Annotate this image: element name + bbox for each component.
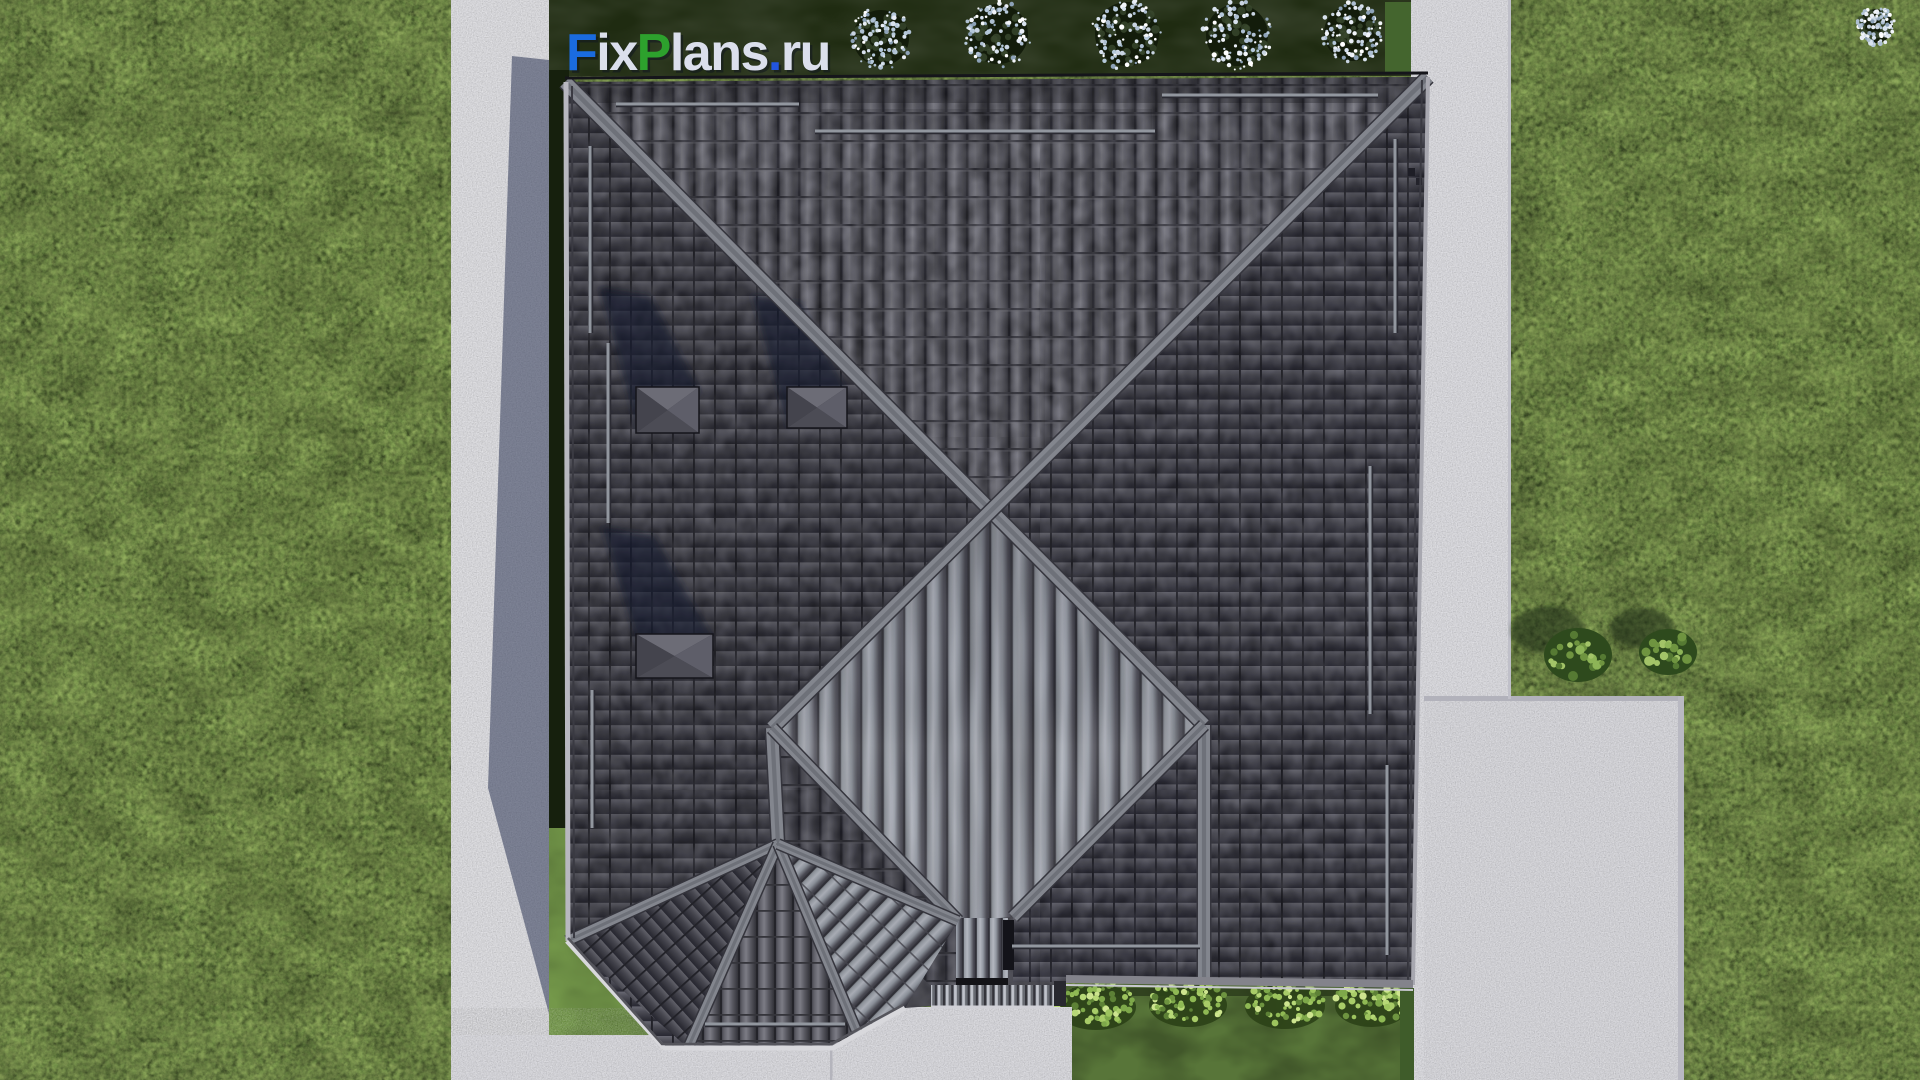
svg-text:FixPlans.ru: FixPlans.ru xyxy=(566,24,830,82)
